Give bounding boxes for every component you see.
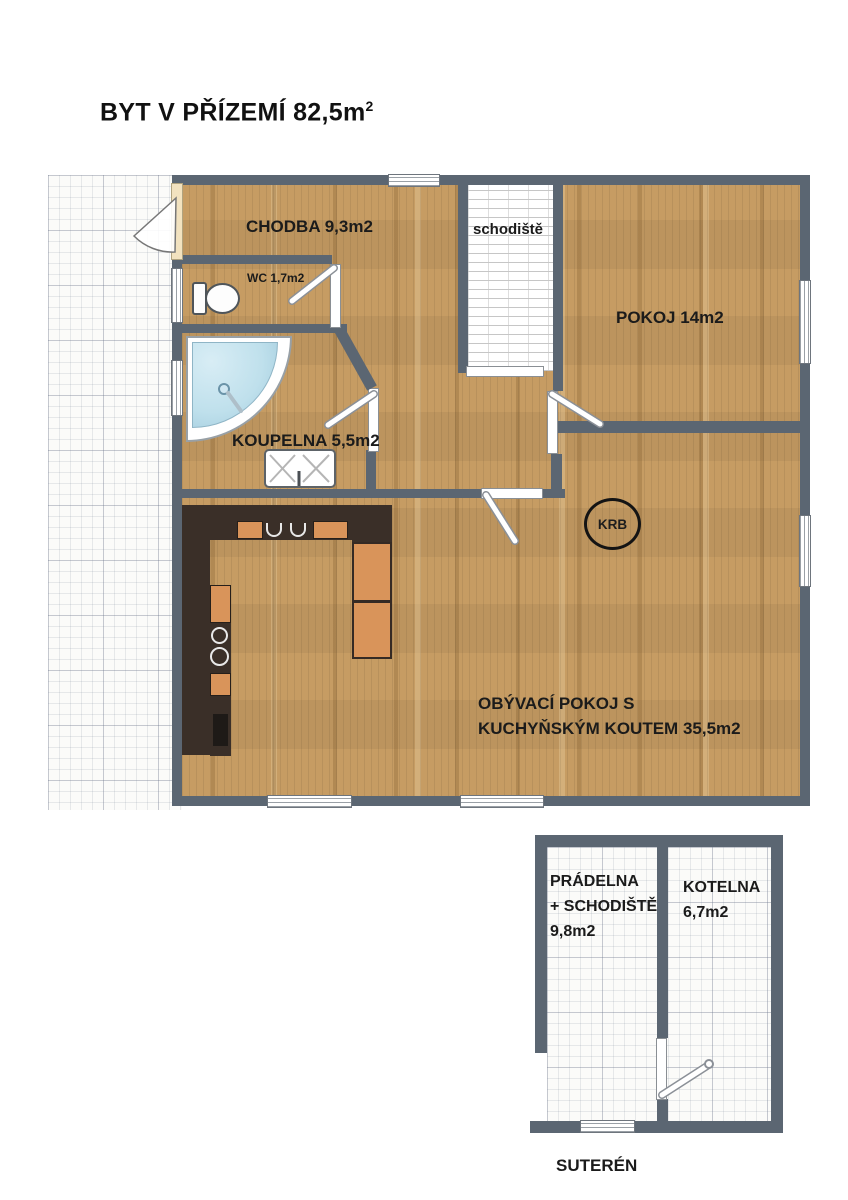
bathroom-sink [264, 449, 336, 488]
basement-divider-wall-upper [657, 847, 668, 1038]
wall-wc-top [182, 255, 332, 264]
staircase-threshold [466, 366, 544, 377]
room-label-chodba: CHODBA 9,3m2 [246, 216, 373, 238]
basement-wall-top [535, 835, 783, 847]
kitchen-cabinet-front [210, 585, 231, 623]
window-bottom-living-2 [460, 795, 544, 808]
basement-caption: SUTERÉN [556, 1155, 637, 1177]
window-right-living [799, 515, 811, 587]
room-label-schodiste: schodiště [473, 220, 543, 240]
wall-staircase-left [458, 185, 468, 373]
wall-jamb-below-bathroom-door [366, 450, 376, 498]
kitchen-tall-cabinet-upper [352, 542, 392, 602]
kitchen-cabinet-front [313, 521, 348, 539]
fireplace-circle: KRB [584, 498, 641, 550]
kitchen-sink-basin [210, 647, 229, 666]
basement-wall-bottom [530, 1121, 783, 1133]
room-label-kotelna: KOTELNA 6,7m2 [683, 876, 760, 926]
window-right-pokoj [799, 280, 811, 364]
entrance-door [171, 183, 183, 260]
window-left-wc [171, 268, 183, 323]
floor-plan-page: BYT V PŘÍZEMÍ 82,5m2 [0, 0, 848, 1200]
page-title-superscript: 2 [366, 98, 374, 114]
wall-mid-right [543, 489, 565, 498]
kitchen-counter-left [182, 540, 210, 755]
room-label-pradelna: PRÁDELNA + SCHODIŠTĚ 9,8m2 [550, 870, 657, 944]
kitchen-cabinet-front [210, 673, 231, 696]
oven-front [213, 714, 228, 746]
staircase-shaft [468, 185, 553, 371]
wall-exterior-right [800, 175, 810, 806]
wall-bathroom-top [182, 324, 347, 333]
fireplace-label: KRB [598, 517, 627, 532]
toilet-bowl [205, 283, 240, 314]
pokoj-door [547, 391, 558, 454]
basement-wall-left [535, 835, 547, 1053]
room-label-wc: WC 1,7m2 [247, 271, 304, 287]
kitchen-tall-cabinet-lower [352, 601, 392, 659]
wall-pokoj-bottom [553, 421, 800, 433]
kitchen-cabinet-front [237, 521, 263, 539]
window-bottom-living-1 [267, 795, 352, 808]
wall-mid-left [182, 489, 481, 498]
basement-divider-wall-lower [657, 1099, 668, 1121]
wall-exterior-top [172, 175, 810, 185]
wall-staircase-right [553, 185, 563, 391]
basement-window-bottom [580, 1120, 635, 1133]
room-label-koupelna: KOUPELNA 5,5m2 [232, 430, 380, 452]
kitchen-sink-basin [211, 627, 228, 644]
window-top-hallway [388, 174, 440, 187]
graph-paper-background [48, 175, 182, 810]
wc-door [330, 264, 341, 328]
page-title: BYT V PŘÍZEMÍ 82,5m2 [100, 98, 374, 127]
basement-wall-right [771, 835, 783, 1133]
window-left-bathroom [171, 360, 183, 416]
room-label-obyvaci: OBÝVACÍ POKOJ S KUCHYŇSKÝM KOUTEM 35,5m2 [478, 692, 741, 741]
boiler-room-door [656, 1038, 667, 1100]
page-title-text: BYT V PŘÍZEMÍ 82,5m [100, 98, 366, 126]
room-label-pokoj: POKOJ 14m2 [616, 307, 724, 329]
living-room-door-threshold [481, 488, 543, 499]
